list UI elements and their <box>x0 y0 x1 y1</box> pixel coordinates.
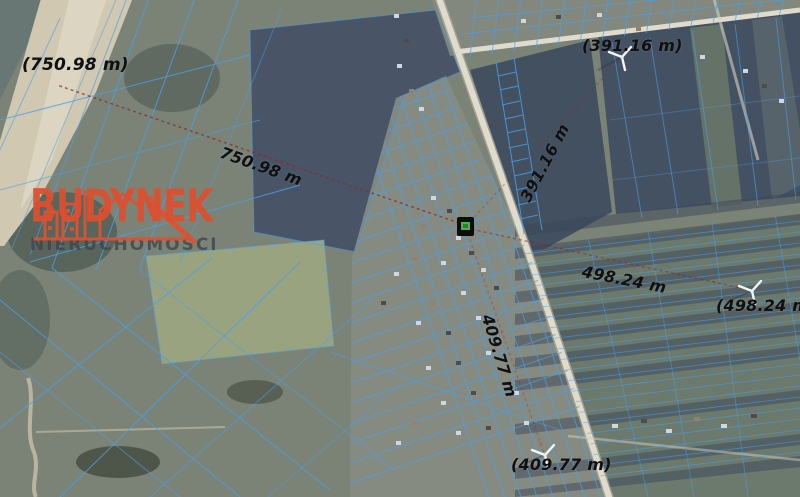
brand-name: BUDYNEK <box>30 184 190 230</box>
property-marker <box>457 217 474 236</box>
distance-endpoint-label-750: (750.98 m) <box>22 55 129 75</box>
distance-endpoint-label-391: (391.16 m) <box>582 36 683 55</box>
agency-watermark: BUDYNEK NIERUCHOMOŚCI <box>30 182 230 255</box>
distance-endpoint-label-498: (498.24 m) <box>716 296 800 315</box>
distance-endpoint-label-409: (409.77 m) <box>511 455 612 474</box>
property-marker-core <box>463 224 468 228</box>
map-canvas[interactable]: (750.98 m) 750.98 m (391.16 m) 391.16 m … <box>0 0 800 497</box>
